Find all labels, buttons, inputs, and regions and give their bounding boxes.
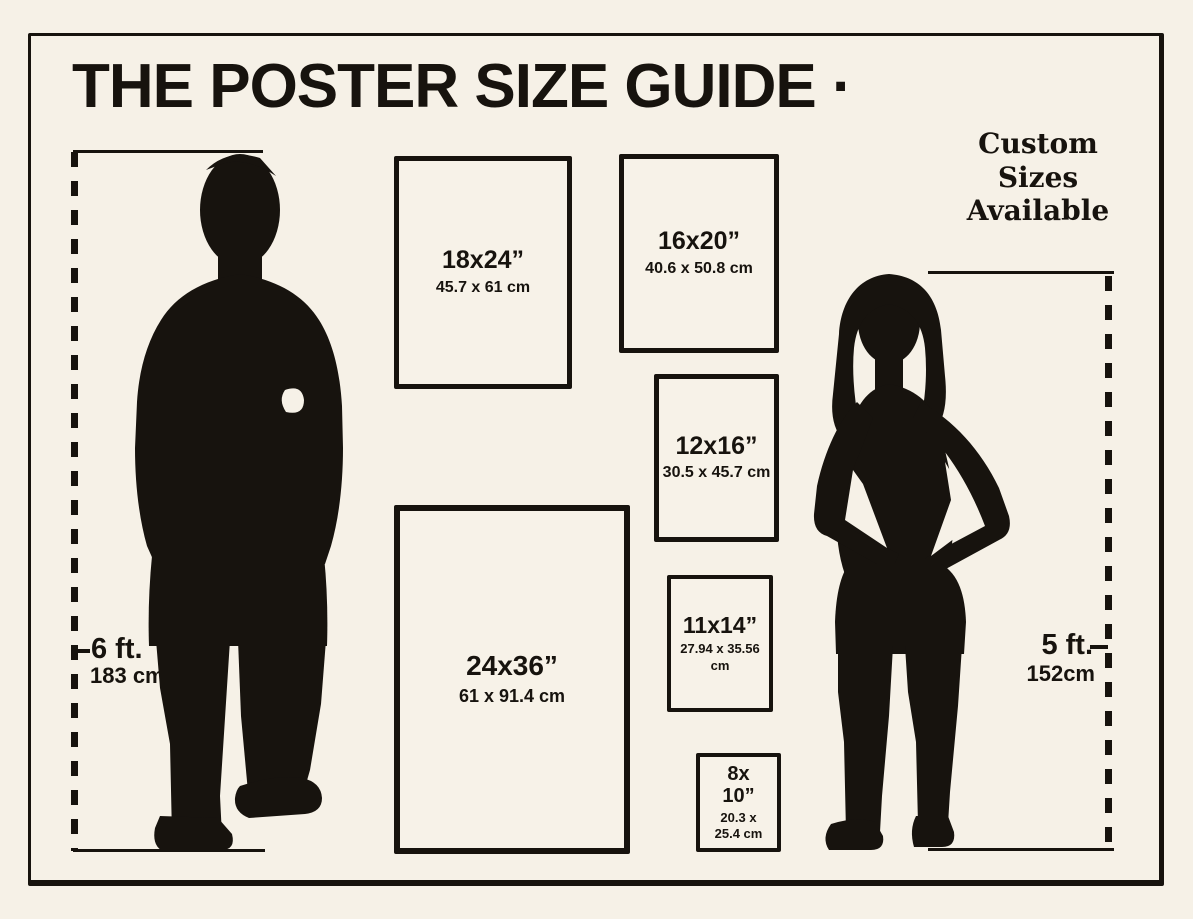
poster-size-label: 24x36”: [466, 651, 558, 682]
poster-size-label: 8x 10”: [722, 763, 754, 807]
poster-size-guide: THE POSTER SIZE GUIDE · Custom Sizes Ava…: [0, 0, 1193, 919]
poster-box-12x16: 12x16” 30.5 x 45.7 cm: [654, 374, 779, 542]
poster-box-8x10: 8x 10” 20.3 x 25.4 cm: [696, 753, 781, 852]
man-silhouette: [128, 148, 346, 853]
woman-silhouette: [813, 272, 1020, 853]
woman-height-dashed-line: [1105, 276, 1112, 851]
poster-metric-label: 40.6 x 50.8 cm: [645, 259, 753, 279]
poster-metric-label: 27.94 x 35.56 cm: [671, 641, 769, 674]
poster-metric-label: 61 x 91.4 cm: [459, 685, 565, 708]
man-height-dashed-line: [71, 152, 78, 851]
poster-box-11x14: 11x14” 27.94 x 35.56 cm: [667, 575, 773, 712]
poster-metric-label: 20.3 x 25.4 cm: [715, 810, 763, 843]
custom-sizes-note: Custom Sizes Available: [953, 127, 1123, 228]
poster-metric-label: 45.7 x 61 cm: [436, 278, 530, 298]
page-title: THE POSTER SIZE GUIDE ·: [72, 56, 852, 118]
man-measure-tick: [74, 649, 90, 653]
poster-size-label: 11x14”: [683, 613, 757, 638]
poster-box-18x24: 18x24” 45.7 x 61 cm: [394, 156, 572, 389]
poster-box-16x20: 16x20” 40.6 x 50.8 cm: [619, 154, 779, 353]
poster-size-label: 16x20”: [658, 228, 740, 256]
poster-size-label: 12x16”: [675, 433, 757, 461]
poster-size-label: 18x24”: [442, 247, 524, 275]
poster-box-24x36: 24x36” 61 x 91.4 cm: [394, 505, 630, 854]
poster-metric-label: 30.5 x 45.7 cm: [663, 463, 771, 483]
